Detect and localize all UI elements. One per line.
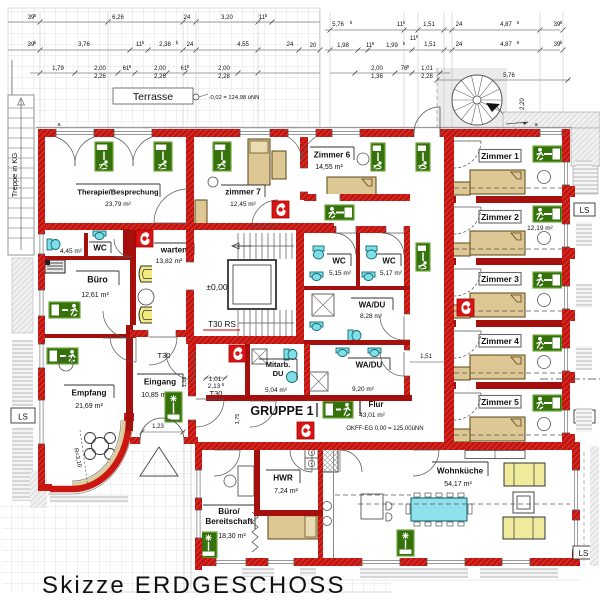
svg-text:18,30 m²: 18,30 m²	[218, 533, 246, 540]
svg-text:Empfang: Empfang	[71, 389, 106, 398]
svg-text:12,19 m²: 12,19 m²	[527, 225, 553, 232]
svg-text:1,79: 1,79	[52, 66, 64, 72]
svg-text:2,00: 2,00	[218, 66, 230, 72]
svg-text:warten: warten	[160, 246, 187, 255]
svg-text:1,75: 1,75	[235, 414, 241, 425]
svg-text:2,00: 2,00	[371, 66, 383, 72]
svg-text:GRUPPE 1: GRUPPE 1	[250, 404, 313, 418]
svg-text:1,98: 1,98	[337, 43, 349, 49]
svg-text:1,51: 1,51	[420, 354, 432, 360]
svg-text:2,26: 2,26	[154, 74, 166, 80]
svg-text:1,01: 1,01	[421, 66, 433, 72]
svg-text:8,28 m²: 8,28 m²	[360, 313, 383, 320]
svg-text:2,28: 2,28	[421, 74, 433, 80]
svg-text:LS: LS	[579, 549, 589, 558]
svg-text:WC: WC	[332, 257, 346, 266]
svg-text:Zimmer 4: Zimmer 4	[481, 336, 519, 346]
svg-text:5,04 m²: 5,04 m²	[265, 387, 288, 394]
svg-text:43,01 m²: 43,01 m²	[359, 412, 385, 419]
svg-text:Bereitschaft: Bereitschaft	[205, 517, 253, 526]
svg-text:Treppe in KG: Treppe in KG	[10, 153, 19, 197]
svg-text:24: 24	[184, 15, 191, 21]
svg-text:13,82 m²: 13,82 m²	[156, 258, 184, 265]
svg-text:4,45 m²: 4,45 m²	[60, 248, 83, 255]
svg-text:WA/DU: WA/DU	[359, 301, 386, 310]
svg-text:Büro/: Büro/	[218, 507, 240, 516]
svg-text:Zimmer 6: Zimmer 6	[314, 151, 351, 160]
svg-text:24: 24	[187, 42, 194, 48]
svg-text:2,26: 2,26	[94, 74, 106, 80]
svg-text:54,17 m²: 54,17 m²	[444, 481, 472, 488]
svg-text:2,28: 2,28	[218, 74, 230, 80]
svg-text:5,76: 5,76	[503, 73, 515, 79]
svg-text:WC: WC	[382, 257, 396, 266]
svg-text:3,20: 3,20	[221, 15, 233, 21]
svg-text:HWR: HWR	[273, 474, 293, 483]
svg-text:4,55: 4,55	[237, 42, 249, 48]
svg-text:LS: LS	[18, 413, 28, 422]
svg-text:Skizze ERDGESCHOSS: Skizze ERDGESCHOSS	[42, 572, 346, 599]
svg-text:2,00: 2,00	[94, 66, 106, 72]
svg-text:Terrasse: Terrasse	[133, 91, 173, 103]
svg-text:Therapie/Besprechung: Therapie/Besprechung	[77, 188, 159, 197]
svg-text:2,20: 2,20	[520, 98, 526, 110]
svg-text:12,45 m²: 12,45 m²	[230, 201, 256, 208]
svg-text:OKFF-EG 0,00 = 125,00üNN: OKFF-EG 0,00 = 125,00üNN	[346, 426, 423, 432]
svg-text:1,99: 1,99	[386, 43, 398, 49]
svg-text:5,15 m²: 5,15 m²	[329, 270, 352, 277]
svg-text:Zimmer 1: Zimmer 1	[481, 151, 519, 161]
svg-text:23,79 m²: 23,79 m²	[105, 201, 131, 208]
svg-text:3,76: 3,76	[78, 42, 90, 48]
svg-text:WC: WC	[93, 244, 107, 253]
svg-text:14,55 m²: 14,55 m²	[315, 164, 343, 171]
svg-text:1,36: 1,36	[371, 74, 383, 80]
svg-text:LS: LS	[580, 206, 590, 215]
svg-text:Eingang: Eingang	[144, 378, 176, 387]
svg-text:9,20 m²: 9,20 m²	[352, 386, 375, 393]
svg-text:21,69 m²: 21,69 m²	[75, 403, 103, 410]
svg-text:5,76: 5,76	[332, 22, 344, 28]
svg-text:5,17 m²: 5,17 m²	[380, 270, 403, 277]
svg-text:Büro: Büro	[87, 275, 108, 285]
svg-text:2,38: 2,38	[159, 42, 171, 48]
svg-text:2,00: 2,00	[154, 66, 166, 72]
svg-text:24: 24	[456, 42, 463, 48]
svg-text:6,26: 6,26	[112, 15, 124, 21]
svg-text:1,51: 1,51	[424, 42, 436, 48]
svg-text:1,01: 1,01	[209, 376, 222, 383]
svg-text:Zimmer 2: Zimmer 2	[481, 212, 519, 222]
svg-text:T30 RS: T30 RS	[208, 320, 236, 329]
svg-text:24: 24	[287, 42, 294, 48]
svg-text:Wohnküche: Wohnküche	[437, 467, 484, 476]
svg-text:Flur: Flur	[368, 400, 383, 409]
svg-text:7,24 m²: 7,24 m²	[274, 488, 298, 495]
svg-text:4,87: 4,87	[500, 42, 512, 48]
svg-text:4,87: 4,87	[500, 22, 512, 28]
svg-text:24: 24	[456, 22, 463, 28]
svg-text:1,51: 1,51	[423, 22, 435, 28]
svg-text:T30: T30	[158, 351, 171, 360]
svg-text:1,23: 1,23	[152, 424, 164, 430]
svg-text:WA/DU: WA/DU	[356, 361, 383, 370]
svg-text:-0,02 = 124,98 üNN: -0,02 = 124,98 üNN	[209, 95, 260, 101]
svg-text:±0,00: ±0,00	[206, 282, 227, 292]
svg-text:zimmer 7: zimmer 7	[225, 188, 261, 197]
svg-text:DU: DU	[273, 369, 284, 378]
svg-text:Zimmer 3: Zimmer 3	[481, 274, 519, 284]
svg-text:Zimmer 5: Zimmer 5	[481, 397, 519, 407]
svg-text:20: 20	[310, 43, 317, 49]
svg-text:Mitarb.: Mitarb.	[266, 360, 291, 369]
svg-text:12,61 m²: 12,61 m²	[81, 292, 109, 299]
